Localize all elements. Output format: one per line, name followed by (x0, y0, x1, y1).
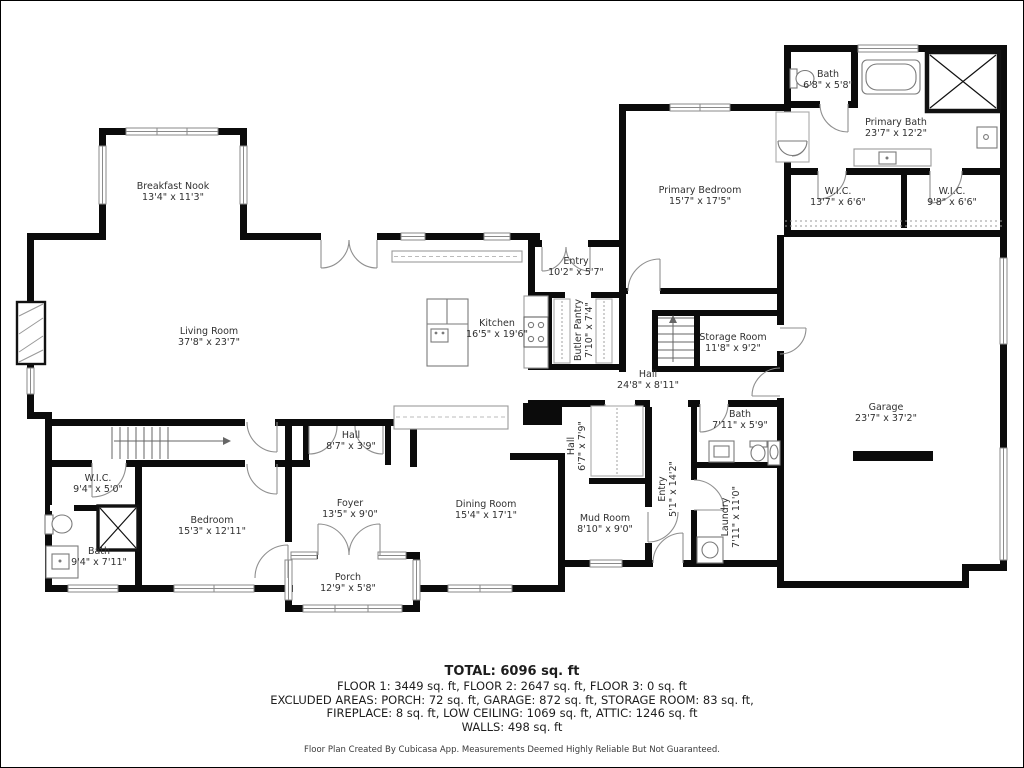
room-label-breakfast-nook: Breakfast Nook13'4" x 11'3" (137, 181, 209, 203)
room-dimensions: 15'4" x 17'1" (455, 510, 517, 521)
room-name: Bath (712, 409, 768, 420)
room-dimensions: 10'2" x 5'7" (548, 267, 604, 278)
room-label-wic-bedroom: W.I.C.9'4" x 5'0" (73, 473, 123, 495)
room-dimensions: 13'7" x 6'6" (810, 197, 866, 208)
room-dimensions: 13'5" x 9'0" (322, 509, 378, 520)
room-name: Primary Bedroom (659, 185, 742, 196)
room-dimensions: 7'11" x 5'9" (712, 420, 768, 431)
room-name: Bedroom (178, 515, 246, 526)
room-dimensions: 24'8" x 8'11" (617, 380, 679, 391)
room-labels: Breakfast Nook13'4" x 11'3"Living Room37… (0, 0, 1024, 620)
room-label-foyer: Foyer13'5" x 9'0" (322, 498, 378, 520)
room-name: Hall (617, 369, 679, 380)
room-dimensions: 11'8" x 9'2" (699, 343, 766, 354)
room-label-laundry: Laundry7'11" x 11'0" (720, 486, 742, 548)
room-label-primary-bedroom: Primary Bedroom15'7" x 17'5" (659, 185, 742, 207)
room-dimensions: 9'8" x 6'6" (927, 197, 977, 208)
room-dimensions: 8'10" x 9'0" (577, 524, 633, 535)
room-label-entry-main: Entry10'2" x 5'7" (548, 256, 604, 278)
room-name: Dining Room (455, 499, 517, 510)
room-name: Entry (657, 461, 668, 517)
excluded-areas-1: EXCLUDED AREAS: PORCH: 72 sq. ft, GARAGE… (0, 694, 1024, 708)
room-label-hall-foyer: Hall8'7" x 3'9" (326, 430, 376, 452)
room-name: Entry (548, 256, 604, 267)
room-label-dining-room: Dining Room15'4" x 17'1" (455, 499, 517, 521)
floor-areas: FLOOR 1: 3449 sq. ft, FLOOR 2: 2647 sq. … (0, 680, 1024, 694)
room-dimensions: 37'8" x 23'7" (178, 337, 240, 348)
room-label-bath-upper: Bath6'8" x 5'8" (803, 69, 853, 91)
room-dimensions: 9'4" x 7'11" (71, 557, 127, 568)
room-label-bath-lower: Bath9'4" x 7'11" (71, 546, 127, 568)
room-dimensions: 13'4" x 11'3" (137, 192, 209, 203)
room-label-wic-left: W.I.C.13'7" x 6'6" (810, 186, 866, 208)
room-name: Porch (320, 572, 376, 583)
summary-footer: TOTAL: 6096 sq. ft FLOOR 1: 3449 sq. ft,… (0, 664, 1024, 755)
room-name: Hall (566, 421, 577, 471)
total-area: TOTAL: 6096 sq. ft (0, 664, 1024, 679)
room-label-hall-small: Hall6'7" x 7'9" (566, 421, 588, 471)
excluded-areas-2: FIREPLACE: 8 sq. ft, LOW CEILING: 1069 s… (0, 707, 1024, 721)
room-dimensions: 9'4" x 5'0" (73, 484, 123, 495)
walls-area: WALLS: 498 sq. ft (0, 721, 1024, 735)
room-label-mud-room: Mud Room8'10" x 9'0" (577, 513, 633, 535)
room-dimensions: 7'11" x 11'0" (731, 486, 742, 548)
disclaimer: Floor Plan Created By Cubicasa App. Meas… (0, 745, 1024, 755)
room-label-garage: Garage23'7" x 37'2" (855, 402, 917, 424)
room-dimensions: 23'7" x 37'2" (855, 413, 917, 424)
room-label-hall-main: Hall24'8" x 8'11" (617, 369, 679, 391)
room-name: Bath (71, 546, 127, 557)
room-name: Garage (855, 402, 917, 413)
room-label-primary-bath: Primary Bath23'7" x 12'2" (865, 117, 927, 139)
room-label-bedroom: Bedroom15'3" x 12'11" (178, 515, 246, 537)
room-dimensions: 6'8" x 5'8" (803, 80, 853, 91)
room-label-kitchen: Kitchen16'5" x 19'6" (466, 318, 528, 340)
room-name: Primary Bath (865, 117, 927, 128)
room-name: Foyer (322, 498, 378, 509)
room-name: W.I.C. (73, 473, 123, 484)
room-name: Breakfast Nook (137, 181, 209, 192)
room-dimensions: 16'5" x 19'6" (466, 329, 528, 340)
room-name: Mud Room (577, 513, 633, 524)
room-dimensions: 15'3" x 12'11" (178, 526, 246, 537)
room-name: Storage Room (699, 332, 766, 343)
room-dimensions: 12'9" x 5'8" (320, 583, 376, 594)
floor-plan-page: Breakfast Nook13'4" x 11'3"Living Room37… (0, 0, 1024, 768)
room-label-entry-front: Entry5'1" x 14'2" (657, 461, 679, 517)
room-dimensions: 23'7" x 12'2" (865, 128, 927, 139)
room-name: W.I.C. (927, 186, 977, 197)
room-dimensions: 5'1" x 14'2" (668, 461, 679, 517)
room-dimensions: 7'10" x 7'4" (584, 299, 595, 361)
room-name: Kitchen (466, 318, 528, 329)
room-label-wic-right: W.I.C.9'8" x 6'6" (927, 186, 977, 208)
room-name: Living Room (178, 326, 240, 337)
room-name: Laundry (720, 486, 731, 548)
room-label-bath-middle: Bath7'11" x 5'9" (712, 409, 768, 431)
room-label-living-room: Living Room37'8" x 23'7" (178, 326, 240, 348)
room-name: Hall (326, 430, 376, 441)
room-dimensions: 8'7" x 3'9" (326, 441, 376, 452)
room-name: W.I.C. (810, 186, 866, 197)
room-dimensions: 15'7" x 17'5" (659, 196, 742, 207)
room-name: Bath (803, 69, 853, 80)
room-label-butler-pantry: Butler Pantry7'10" x 7'4" (573, 299, 595, 361)
room-label-porch: Porch12'9" x 5'8" (320, 572, 376, 594)
room-label-storage-room: Storage Room11'8" x 9'2" (699, 332, 766, 354)
room-dimensions: 6'7" x 7'9" (577, 421, 588, 471)
room-name: Butler Pantry (573, 299, 584, 361)
